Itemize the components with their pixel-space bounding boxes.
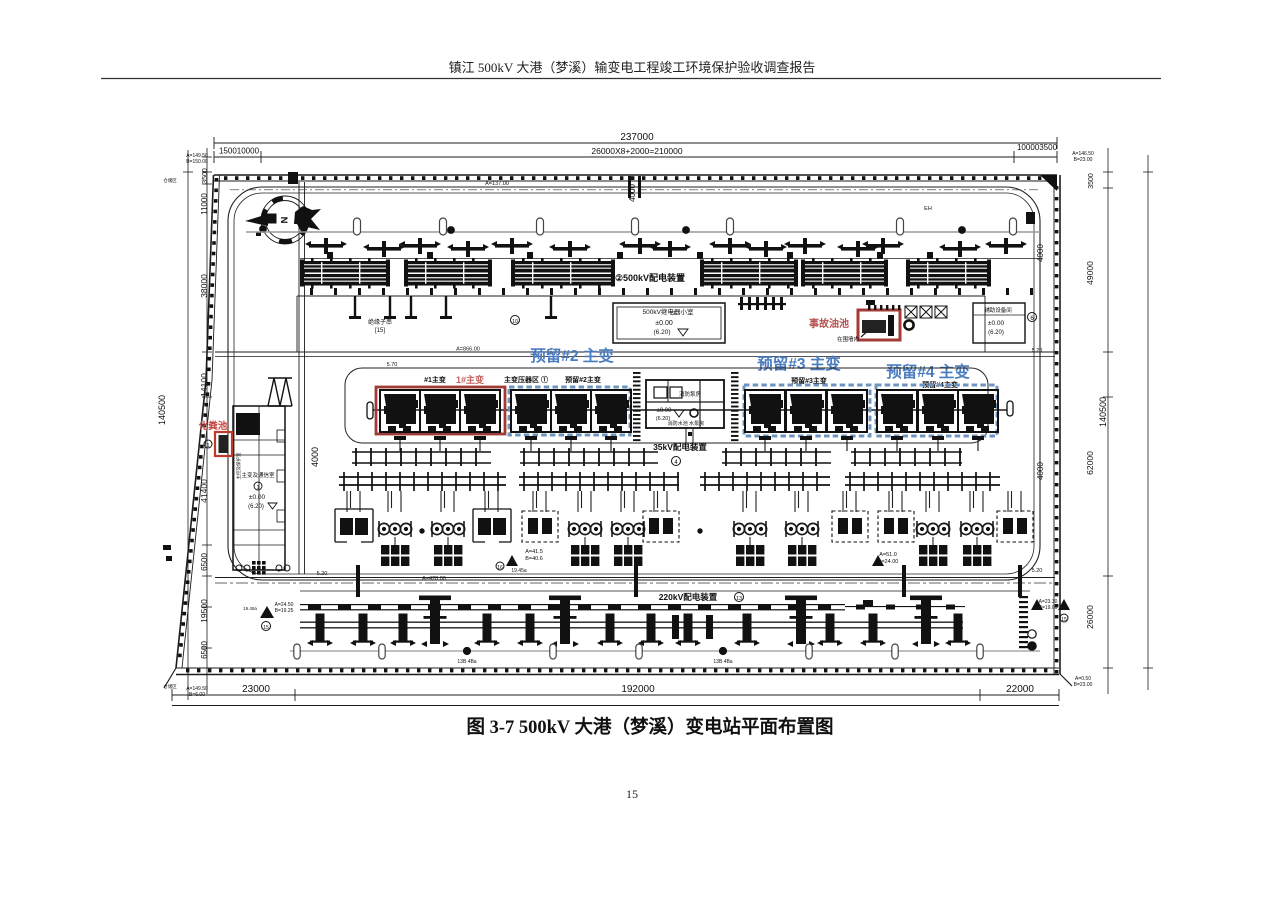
svg-text:237000: 237000 xyxy=(620,132,654,143)
svg-text:(6.20): (6.20) xyxy=(988,330,1004,336)
svg-text:220kV配电装置: 220kV配电装置 xyxy=(659,592,718,602)
svg-text:192000: 192000 xyxy=(621,684,655,695)
svg-text:EH: EH xyxy=(924,206,932,212)
svg-text:B=6.00: B=6.00 xyxy=(189,692,205,698)
svg-text:仓储区: 仓储区 xyxy=(163,683,177,690)
svg-text:±0.00: ±0.00 xyxy=(657,408,673,414)
svg-text:19.45a: 19.45a xyxy=(511,568,527,574)
svg-text:140500: 140500 xyxy=(157,395,167,425)
svg-text:62000: 62000 xyxy=(1085,451,1095,475)
svg-text:辅助设备间: 辅助设备间 xyxy=(984,306,1012,314)
svg-text:49000: 49000 xyxy=(1085,261,1095,285)
svg-text:在围墙内: 在围墙内 xyxy=(837,335,859,343)
svg-text:6500: 6500 xyxy=(200,553,209,571)
svg-text:预留#3 主变: 预留#3 主变 xyxy=(757,354,841,373)
svg-text:化粪池: 化粪池 xyxy=(199,420,228,432)
svg-text:B=23.00: B=23.00 xyxy=(1074,682,1093,688)
svg-text:23000: 23000 xyxy=(242,684,270,695)
svg-text:预留#2 主变: 预留#2 主变 xyxy=(530,346,614,365)
svg-text:10: 10 xyxy=(512,319,518,325)
svg-text:仓储区: 仓储区 xyxy=(163,177,177,184)
svg-text:15: 15 xyxy=(263,625,269,631)
svg-text:A=428.00: A=428.00 xyxy=(422,576,446,582)
svg-text:A=137.00: A=137.00 xyxy=(485,181,509,187)
svg-text:主控及保护室: 主控及保护室 xyxy=(235,452,242,479)
svg-text:(6.20): (6.20) xyxy=(654,329,671,336)
svg-text:1#主变: 1#主变 xyxy=(456,374,484,385)
svg-text:B=24.00: B=24.00 xyxy=(878,559,899,565)
svg-text:4000: 4000 xyxy=(310,447,320,467)
svg-text:35kV配电装置: 35kV配电装置 xyxy=(653,442,707,452)
svg-text:主变压器区 ①: 主变压器区 ① xyxy=(504,375,548,384)
svg-text:1: 1 xyxy=(256,485,259,491)
svg-text:#1主变: #1主变 xyxy=(424,375,446,384)
svg-text:5.20: 5.20 xyxy=(317,571,328,577)
svg-text:②500kV配电装置: ②500kV配电装置 xyxy=(615,272,685,283)
svg-text:22000: 22000 xyxy=(1006,684,1034,695)
svg-text:A=866.00: A=866.00 xyxy=(456,347,480,353)
svg-text:B=150.00: B=150.00 xyxy=(186,159,208,165)
svg-text:B=19.25: B=19.25 xyxy=(275,608,294,614)
svg-text:5.20: 5.20 xyxy=(1032,568,1043,574)
svg-text:15: 15 xyxy=(626,787,638,801)
svg-text:4000: 4000 xyxy=(1036,462,1045,480)
svg-text:（7: （7 xyxy=(668,311,676,317)
svg-text:150010000: 150010000 xyxy=(219,147,260,156)
svg-text:3500: 3500 xyxy=(202,168,209,184)
svg-text:38000: 38000 xyxy=(199,274,209,298)
svg-text:1: 1 xyxy=(206,443,209,449)
svg-text:N: N xyxy=(278,217,289,224)
svg-text:140500: 140500 xyxy=(1098,397,1108,427)
svg-text:13B 4Ba: 13B 4Ba xyxy=(457,659,476,665)
svg-text:预留#2主变: 预留#2主变 xyxy=(565,375,601,384)
svg-text:16: 16 xyxy=(497,565,503,571)
svg-text:A=41.5: A=41.5 xyxy=(525,549,543,555)
svg-text:消防水池 水泵房: 消防水池 水泵房 xyxy=(668,420,704,427)
svg-text:预留#4 主变: 预留#4 主变 xyxy=(886,362,970,381)
svg-text:镇江 500kV 大港（梦溪）输变电工程竣工环境保护验收调查: 镇江 500kV 大港（梦溪）输变电工程竣工环境保护验收调查报告 xyxy=(449,60,816,75)
svg-text:26000: 26000 xyxy=(1085,605,1095,629)
svg-text:5.70: 5.70 xyxy=(387,362,398,368)
svg-text:4000: 4000 xyxy=(1036,244,1045,262)
svg-text:6500: 6500 xyxy=(200,641,209,659)
svg-text:13: 13 xyxy=(736,596,742,602)
svg-text:5.20: 5.20 xyxy=(1032,348,1043,354)
svg-text:B=19.00: B=19.00 xyxy=(1039,605,1058,611)
svg-text:±0.00: ±0.00 xyxy=(655,320,673,327)
svg-text:(6.20): (6.20) xyxy=(248,504,264,510)
svg-text:3500: 3500 xyxy=(1088,173,1095,189)
svg-text:B=40.6: B=40.6 xyxy=(525,556,543,562)
svg-text:19500: 19500 xyxy=(199,599,209,623)
svg-text:13B 4Ba: 13B 4Ba xyxy=(713,659,732,665)
svg-text:19.45a: 19.45a xyxy=(243,606,257,611)
svg-text:15: 15 xyxy=(1061,617,1067,623)
svg-text:±0.00: ±0.00 xyxy=(988,320,1005,327)
svg-text:26000X8+2000=210000: 26000X8+2000=210000 xyxy=(591,146,683,156)
svg-text:±0.00: ±0.00 xyxy=(249,494,266,501)
svg-text:100003500: 100003500 xyxy=(1017,143,1058,152)
svg-text:消防泵房: 消防泵房 xyxy=(679,390,702,398)
svg-text:绝缘子串: 绝缘子串 xyxy=(368,318,392,326)
svg-text:11000: 11000 xyxy=(200,193,209,215)
svg-text:图 3-7 500kV 大港（梦溪）变电站平面布置图: 图 3-7 500kV 大港（梦溪）变电站平面布置图 xyxy=(466,716,833,738)
svg-text:[15]: [15] xyxy=(375,328,385,334)
svg-text:B=23.00: B=23.00 xyxy=(1074,157,1093,163)
svg-text:主变及通信室: 主变及通信室 xyxy=(241,471,275,479)
svg-text:A=51.0: A=51.0 xyxy=(879,552,897,558)
svg-text:事故油池: 事故油池 xyxy=(809,317,849,330)
